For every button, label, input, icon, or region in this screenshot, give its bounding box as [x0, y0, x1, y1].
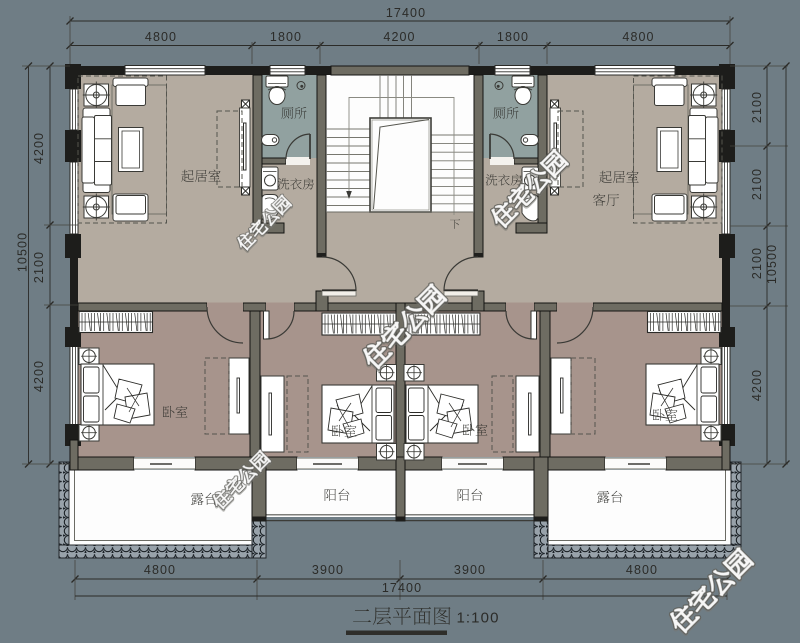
svg-text:1800: 1800	[497, 30, 529, 44]
svg-text:10500: 10500	[16, 232, 30, 272]
svg-text:2100: 2100	[750, 91, 764, 123]
svg-text:2100: 2100	[750, 247, 764, 279]
svg-text:4800: 4800	[144, 563, 176, 577]
svg-text:4200: 4200	[32, 132, 46, 164]
svg-text:4800: 4800	[622, 30, 654, 44]
svg-text:4800: 4800	[626, 563, 658, 577]
svg-text:2100: 2100	[32, 251, 46, 283]
svg-text:4200: 4200	[750, 369, 764, 401]
svg-text:10500: 10500	[765, 244, 779, 284]
svg-text:4200: 4200	[383, 30, 415, 44]
svg-text:4800: 4800	[145, 30, 177, 44]
svg-text:3900: 3900	[454, 563, 486, 577]
svg-text:3900: 3900	[312, 563, 344, 577]
svg-text:17400: 17400	[386, 6, 426, 20]
svg-text:2100: 2100	[750, 168, 764, 200]
svg-text:1800: 1800	[270, 30, 302, 44]
svg-text:1:100: 1:100	[456, 610, 499, 627]
svg-text:17400: 17400	[382, 581, 422, 595]
svg-text:4200: 4200	[32, 360, 46, 392]
